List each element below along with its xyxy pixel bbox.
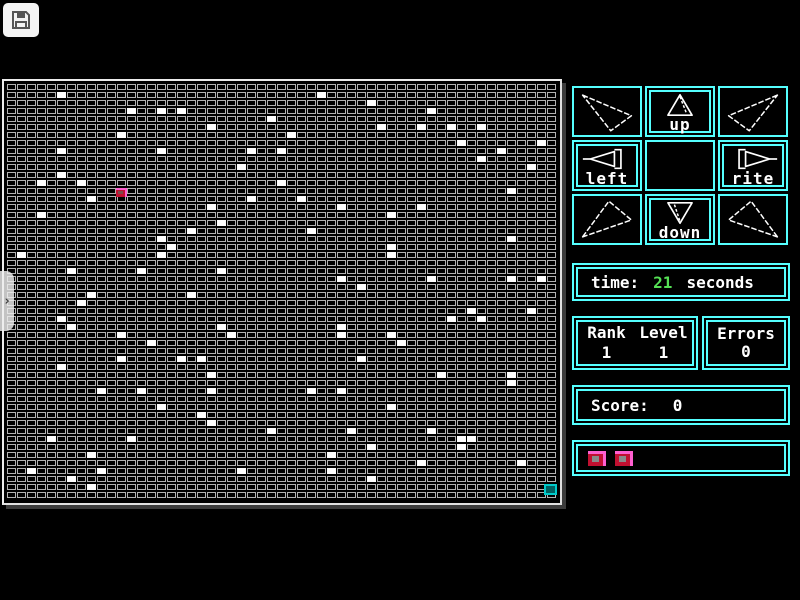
grid-row [7,204,557,212]
grid-row [7,380,557,388]
move-down-right-button[interactable] [718,194,788,245]
grid-row [7,228,557,236]
move-left-button[interactable]: left [572,140,642,191]
grid-row [7,492,557,500]
move-right-button[interactable]: rite [718,140,788,191]
grid-row [7,476,557,484]
grid-row [7,372,557,380]
grid-row [7,356,557,364]
move-down-label: down [659,226,702,240]
grid-row [7,180,557,188]
time-unit: seconds [686,273,753,292]
time-value: 21 [653,273,672,292]
game-grid[interactable] [7,84,557,500]
grid-row [7,220,557,228]
move-down-button[interactable]: down [645,194,715,245]
direction-pad: up left rite [572,86,790,249]
time-box: time: 21 seconds [572,263,790,301]
grid-row [7,316,557,324]
save-button[interactable] [3,3,39,37]
grid-row [7,468,557,476]
grid-row [7,92,557,100]
grid-row [7,300,557,308]
grid-row [7,164,557,172]
grid-row [7,148,557,156]
grid-row [7,196,557,204]
grid-row [7,172,557,180]
arrow-up-left-icon [577,91,637,133]
grid-row [7,116,557,124]
grid-row [7,292,557,300]
grid-row [7,252,557,260]
grid-row [7,484,557,492]
lives-box [572,440,790,476]
grid-row [7,412,557,420]
grid-row [7,340,557,348]
errors-box: Errors 0 [702,316,790,370]
grid-row [7,140,557,148]
grid-row [7,420,557,428]
score-label: Score: [591,396,649,415]
game-board-window [2,79,562,505]
move-right-label: rite [732,172,775,186]
grid-row [7,244,557,252]
grid-row [7,156,557,164]
life-icon [588,451,606,466]
grid-row [7,276,557,284]
goal-marker [544,484,557,495]
grid-row [7,284,557,292]
move-up-right-button[interactable] [718,86,788,137]
dpad-center-cell [645,140,715,191]
rank-value: 1 [578,344,635,362]
score-box: Score: 0 [572,385,790,425]
lives-row [576,444,786,472]
rank-label: Rank [578,324,635,342]
floppy-disk-icon [9,8,33,32]
grid-row [7,436,557,444]
player-marker [116,188,127,197]
grid-row [7,132,557,140]
arrow-right-icon [726,146,780,172]
side-panel-tab[interactable]: › [0,271,14,331]
arrow-up-right-icon [723,91,783,133]
grid-row [7,236,557,244]
grid-row [7,332,557,340]
arrow-down-right-icon [723,199,783,241]
arrow-left-icon [580,146,634,172]
rank-level-box: Rank Level 1 1 [572,316,698,370]
grid-row [7,452,557,460]
grid-row [7,324,557,332]
grid-row [7,124,557,132]
grid-row [7,444,557,452]
grid-cells [7,84,557,500]
grid-row [7,84,557,92]
move-left-label: left [586,172,629,186]
grid-row [7,260,557,268]
grid-row [7,100,557,108]
grid-row [7,404,557,412]
grid-row [7,460,557,468]
score-value: 0 [673,396,683,415]
errors-label: Errors [708,325,784,343]
grid-row [7,348,557,356]
move-down-left-button[interactable] [572,194,642,245]
grid-row [7,212,557,220]
chevron-right-icon: › [3,294,11,309]
grid-row [7,188,557,196]
move-up-left-button[interactable] [572,86,642,137]
errors-value: 0 [708,343,784,361]
arrow-down-icon [661,200,699,226]
grid-row [7,364,557,372]
life-icon [615,451,633,466]
move-up-label: up [669,118,690,132]
level-label: Level [635,324,692,342]
time-label: time: [591,273,639,292]
move-up-button[interactable]: up [645,86,715,137]
grid-row [7,388,557,396]
grid-row [7,108,557,116]
grid-row [7,308,557,316]
grid-row [7,428,557,436]
level-value: 1 [635,344,692,362]
arrow-down-left-icon [577,199,637,241]
grid-row [7,268,557,276]
arrow-up-icon [661,92,699,118]
grid-row [7,396,557,404]
